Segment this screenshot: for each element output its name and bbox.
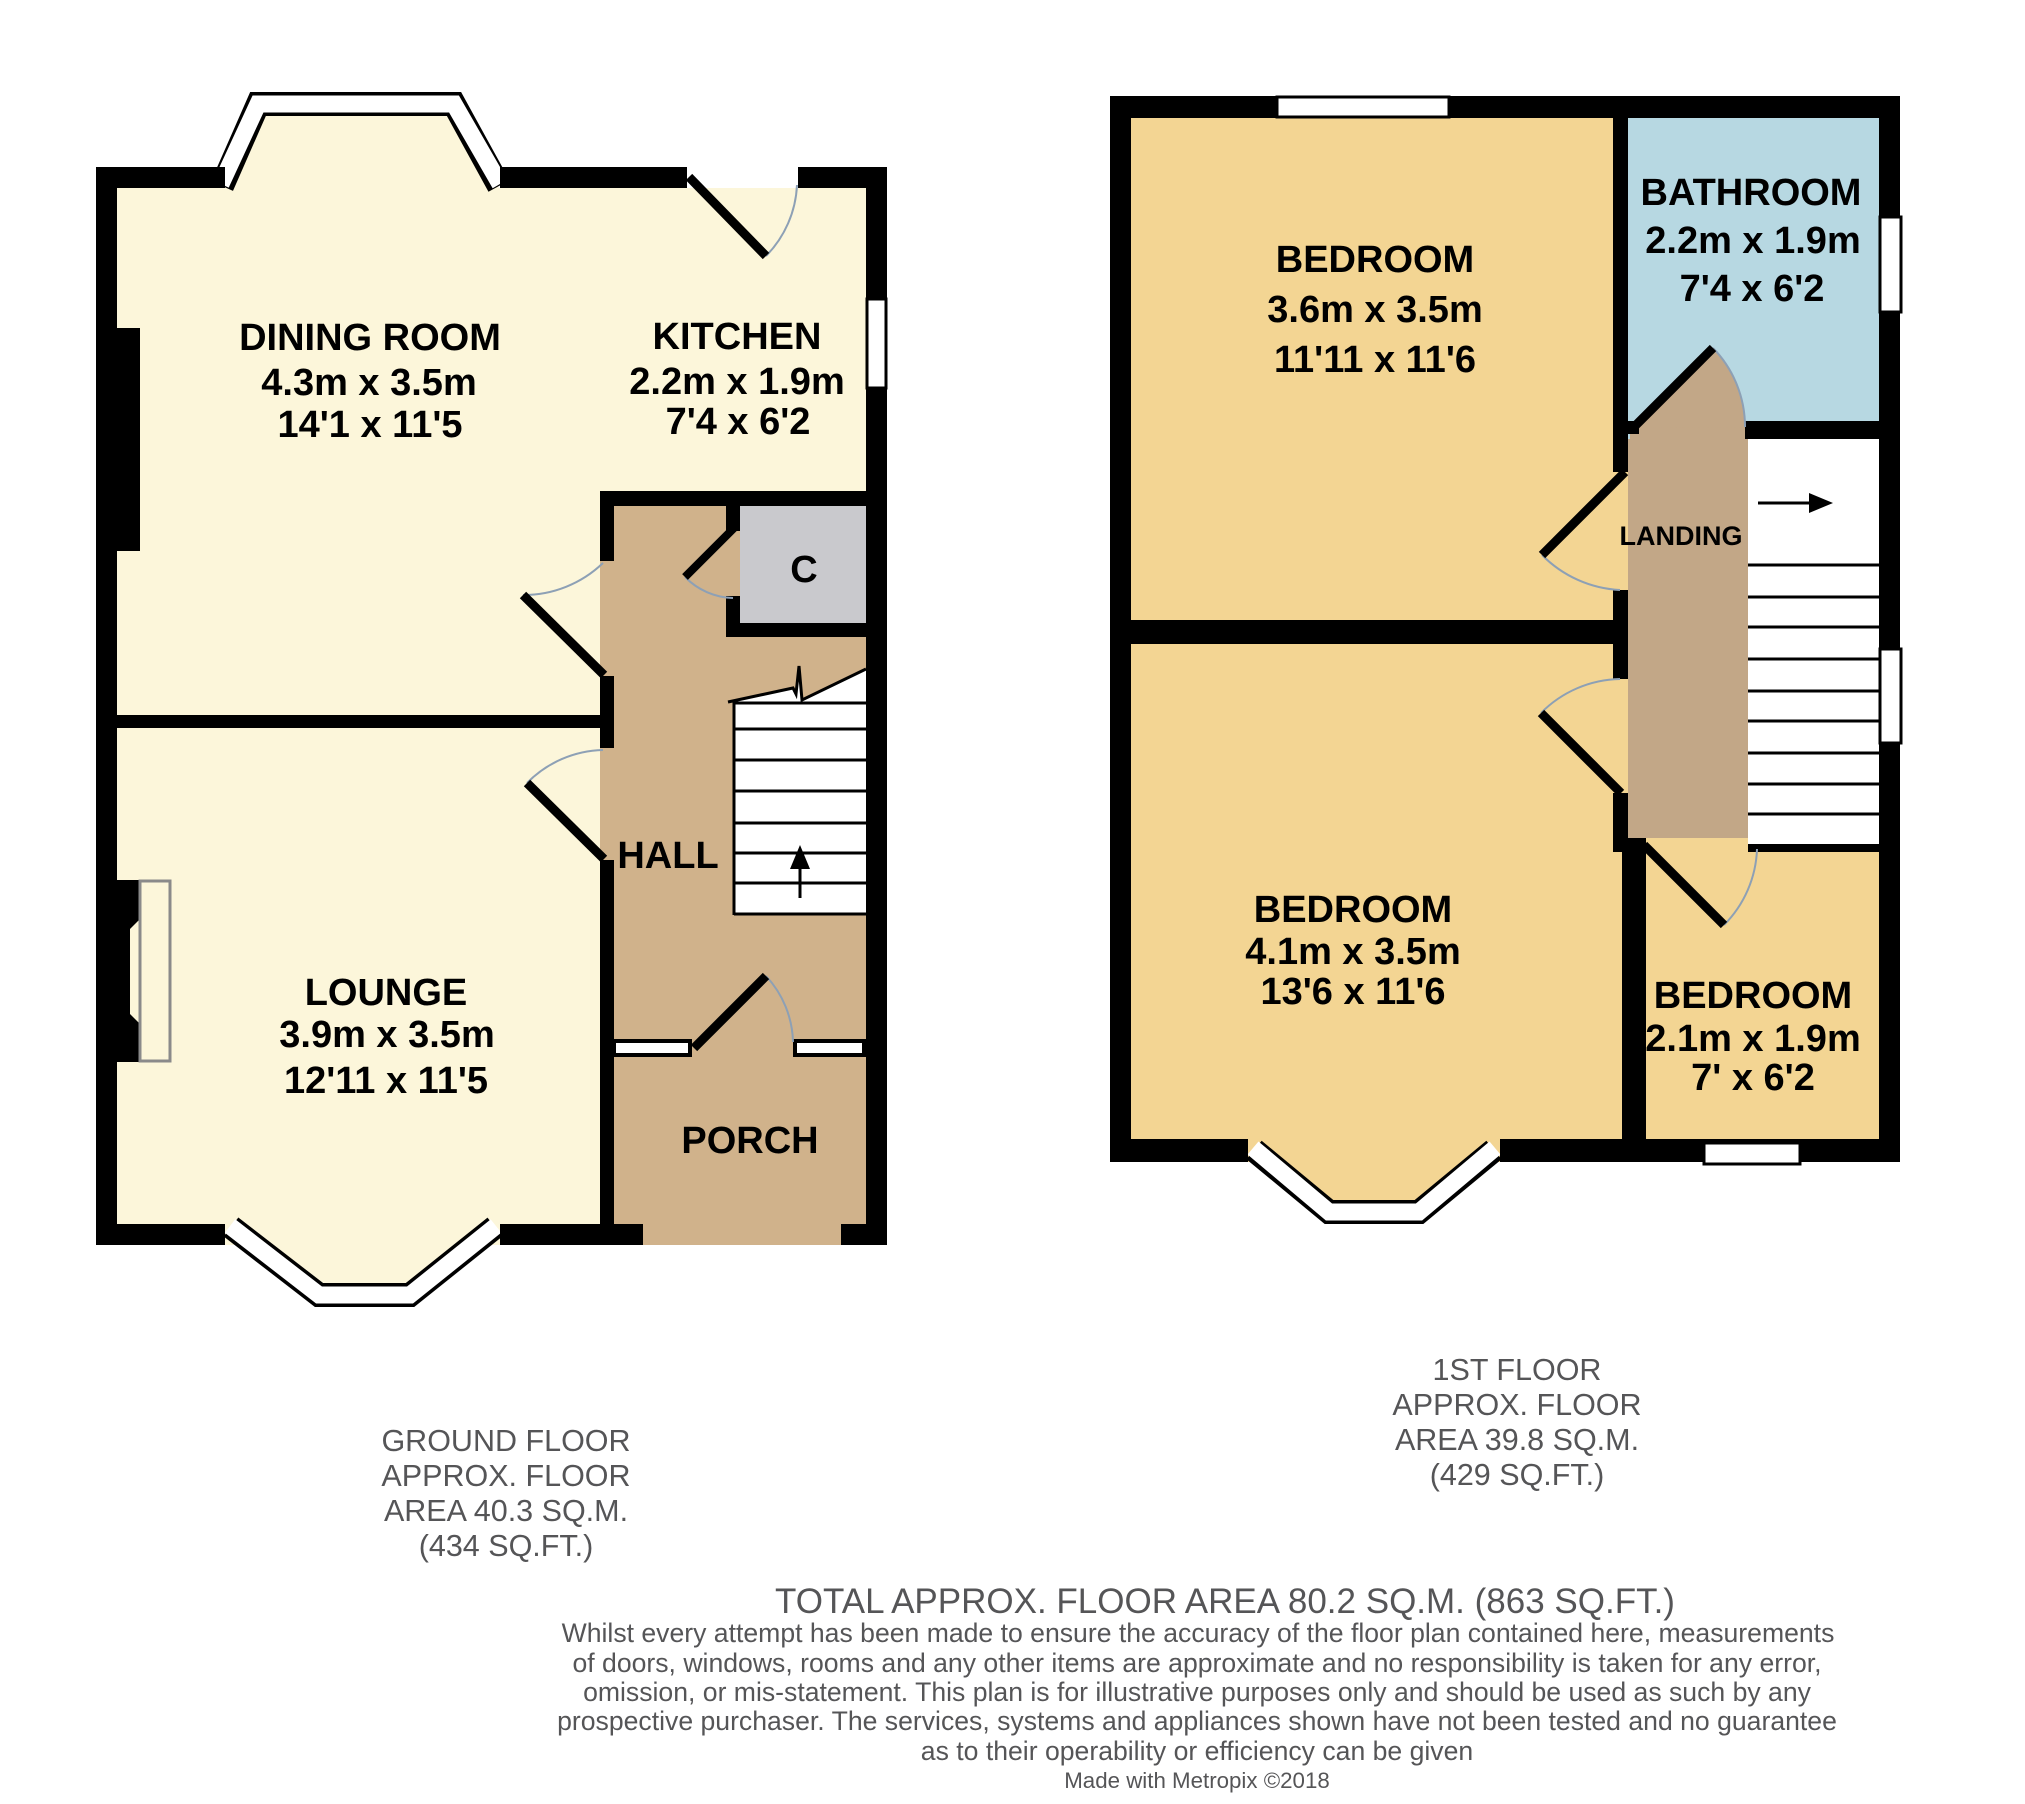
svg-text:4.1m x 3.5m: 4.1m x 3.5m xyxy=(1245,931,1460,973)
svg-text:3.6m x 3.5m: 3.6m x 3.5m xyxy=(1267,289,1482,331)
svg-text:LANDING: LANDING xyxy=(1620,521,1743,551)
svg-text:11'11 x 11'6: 11'11 x 11'6 xyxy=(1274,339,1476,381)
svg-text:LOUNGE: LOUNGE xyxy=(305,972,468,1014)
svg-text:7'4 x 6'2: 7'4 x 6'2 xyxy=(1680,268,1825,310)
svg-text:C: C xyxy=(790,549,817,591)
svg-text:14'1 x 11'5: 14'1 x 11'5 xyxy=(277,404,462,446)
svg-text:of doors, windows, rooms and a: of doors, windows, rooms and any other i… xyxy=(572,1648,1821,1678)
svg-text:APPROX. FLOOR: APPROX. FLOOR xyxy=(1392,1388,1641,1422)
svg-text:(429 SQ.FT.): (429 SQ.FT.) xyxy=(1430,1458,1605,1492)
svg-text:Whilst every attempt has been: Whilst every attempt has been made to en… xyxy=(562,1618,1835,1648)
svg-text:prospective purchaser. The ser: prospective purchaser. The services, sys… xyxy=(557,1706,1837,1736)
svg-text:7'4 x 6'2: 7'4 x 6'2 xyxy=(666,401,811,443)
svg-text:BEDROOM: BEDROOM xyxy=(1654,975,1852,1017)
svg-text:7' x 6'2: 7' x 6'2 xyxy=(1691,1057,1815,1099)
svg-text:PORCH: PORCH xyxy=(681,1120,818,1162)
svg-text:HALL: HALL xyxy=(617,835,718,877)
svg-text:2.2m x 1.9m: 2.2m x 1.9m xyxy=(629,361,844,403)
svg-text:12'11 x 11'5: 12'11 x 11'5 xyxy=(284,1060,488,1102)
svg-text:(434 SQ.FT.): (434 SQ.FT.) xyxy=(419,1529,594,1563)
svg-text:BEDROOM: BEDROOM xyxy=(1254,889,1452,931)
svg-text:TOTAL APPROX. FLOOR AREA 80.2: TOTAL APPROX. FLOOR AREA 80.2 SQ.M. (863… xyxy=(775,1582,1675,1621)
svg-text:omission, or mis-statement. Th: omission, or mis-statement. This plan is… xyxy=(583,1677,1812,1707)
svg-text:2.2m x 1.9m: 2.2m x 1.9m xyxy=(1645,220,1860,262)
svg-text:KITCHEN: KITCHEN xyxy=(653,316,822,358)
svg-text:4.3m x 3.5m: 4.3m x 3.5m xyxy=(261,362,476,404)
svg-text:13'6 x 11'6: 13'6 x 11'6 xyxy=(1260,971,1445,1013)
svg-text:DINING ROOM: DINING ROOM xyxy=(239,317,501,359)
svg-text:BATHROOM: BATHROOM xyxy=(1641,172,1862,214)
svg-text:2.1m x 1.9m: 2.1m x 1.9m xyxy=(1645,1018,1860,1060)
svg-text:AREA 39.8 SQ.M.: AREA 39.8 SQ.M. xyxy=(1395,1423,1639,1457)
svg-text:1ST FLOOR: 1ST FLOOR xyxy=(1433,1353,1602,1387)
svg-text:3.9m x 3.5m: 3.9m x 3.5m xyxy=(279,1014,494,1056)
svg-text:APPROX. FLOOR: APPROX. FLOOR xyxy=(381,1459,630,1493)
svg-text:Made with Metropix ©2018: Made with Metropix ©2018 xyxy=(1064,1768,1330,1793)
svg-text:GROUND FLOOR: GROUND FLOOR xyxy=(381,1424,630,1458)
svg-text:AREA 40.3 SQ.M.: AREA 40.3 SQ.M. xyxy=(384,1494,628,1528)
svg-text:BEDROOM: BEDROOM xyxy=(1276,239,1474,281)
svg-text:as to their operability or eff: as to their operability or efficiency ca… xyxy=(921,1736,1473,1766)
